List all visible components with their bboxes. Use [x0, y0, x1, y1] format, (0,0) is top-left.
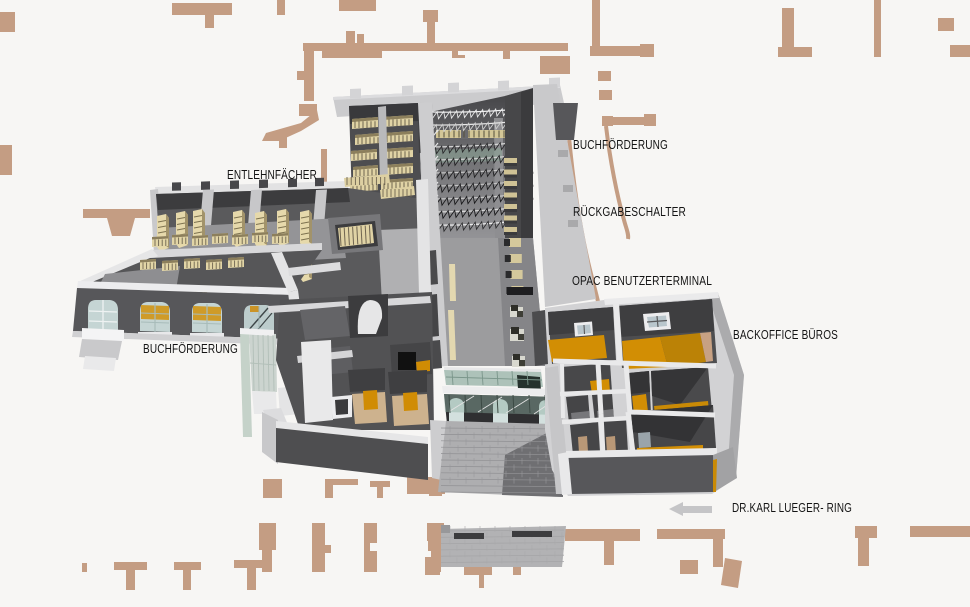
svg-text:DR.KARL LUEGER- RING: DR.KARL LUEGER- RING [732, 500, 852, 515]
svg-text:BACKOFFICE BÜROS: BACKOFFICE BÜROS [733, 327, 838, 342]
svg-text:BUCHFÖRDERUNG: BUCHFÖRDERUNG [573, 137, 668, 152]
svg-text:BUCHFÖRDERUNG: BUCHFÖRDERUNG [143, 341, 238, 356]
svg-text:OPAC BENUTZERTERMINAL: OPAC BENUTZERTERMINAL [572, 273, 712, 288]
svg-text:ENTLEHNFÄCHER: ENTLEHNFÄCHER [227, 167, 317, 182]
svg-text:RÜCKGABESCHALTER: RÜCKGABESCHALTER [573, 204, 686, 219]
